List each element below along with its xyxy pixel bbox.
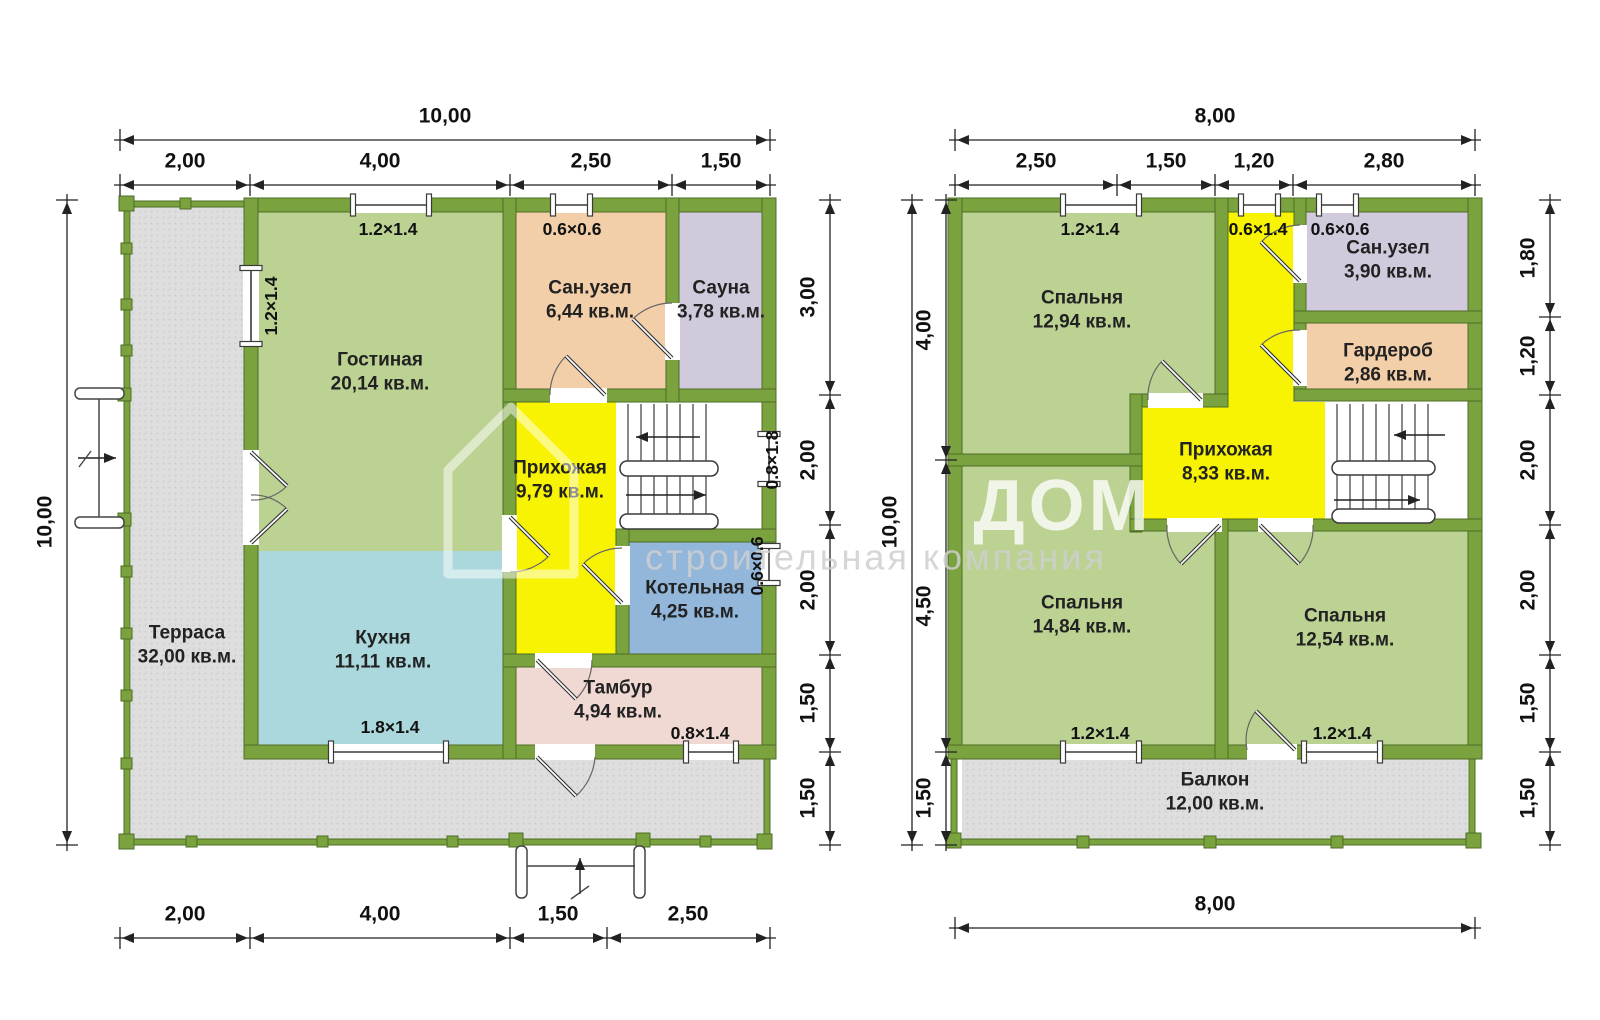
room-area-label: 12,54 кв.м.: [1296, 630, 1395, 651]
window-cap: [1302, 741, 1307, 763]
dim-label: 2,00: [1517, 440, 1540, 481]
terrace-rail: [1469, 759, 1475, 839]
rail-post: [509, 833, 523, 847]
window-cap: [240, 342, 262, 347]
stair-rail: [1332, 509, 1435, 523]
dim-label: 1,50: [797, 683, 820, 724]
room-name-label: Спальня: [1041, 288, 1123, 309]
room-fill-terrasa-left: [131, 206, 244, 840]
window-cap: [1239, 194, 1244, 216]
door-opening: [243, 450, 259, 545]
stair-rail: [620, 461, 718, 476]
window-size-label: 0.6×0.6: [1311, 219, 1370, 239]
room-name-label: Балкон: [1181, 770, 1250, 791]
room-area-label: 12,00 кв.м.: [1166, 794, 1265, 815]
wall: [666, 198, 679, 402]
room-name-label: Тамбур: [584, 678, 653, 699]
wall: [948, 454, 1142, 466]
room-area-label: 32,00 кв.м.: [138, 647, 237, 668]
window-cap: [1317, 194, 1322, 216]
dim-label: 2,00: [1517, 570, 1540, 611]
wall: [1468, 198, 1482, 759]
room-area-label: 12,94 кв.м.: [1033, 312, 1132, 333]
dim-label: 2,50: [668, 903, 709, 926]
room-name-label: Котельная: [645, 578, 744, 599]
porch-rail: [516, 846, 527, 898]
room-name-label: Терраса: [149, 623, 226, 644]
dim-label: 1,50: [1146, 150, 1187, 173]
rail-post: [121, 758, 132, 769]
rail-post: [1466, 833, 1481, 848]
stair-rail: [620, 514, 718, 529]
rail-post: [447, 836, 458, 847]
rail-post: [121, 243, 132, 254]
dim-label: 1,20: [1517, 336, 1540, 377]
wall: [1215, 198, 1228, 407]
window-cap: [427, 194, 432, 216]
window-size-label: 1.8×1.4: [361, 717, 420, 737]
window-size-label: 0.6×0.6: [543, 219, 602, 239]
room-name-label: Кухня: [355, 628, 411, 649]
rail-post: [1204, 836, 1216, 848]
room-name-label: Сан.узел: [1346, 238, 1429, 259]
rail-post: [121, 299, 132, 310]
window-cap: [1137, 741, 1142, 763]
window-size-label: 1.2×1.4: [261, 276, 281, 335]
room-area-label: 6,44 кв.м.: [546, 302, 634, 323]
rail-post: [119, 196, 134, 211]
stair-rail: [1332, 461, 1435, 475]
watermark-subtext: строительная компания: [645, 537, 1107, 578]
rail-post: [700, 836, 711, 847]
window-cap: [1378, 741, 1383, 763]
wall: [1294, 389, 1482, 401]
window-cap: [588, 194, 593, 216]
room-fill-spalnya1b: [1130, 212, 1215, 394]
wall: [503, 198, 516, 759]
terrace-rail: [951, 759, 957, 839]
room-area-label: 3,78 кв.м.: [677, 302, 765, 323]
window-cap: [351, 194, 356, 216]
room-area-label: 9,79 кв.м.: [516, 482, 604, 503]
porch-rail: [634, 846, 645, 898]
window-cap: [444, 741, 449, 763]
window-cap: [1061, 741, 1066, 763]
porch-rail: [75, 517, 124, 528]
rail-post: [757, 834, 772, 849]
room-area-label: 11,11 кв.м.: [335, 652, 432, 673]
dim-label: 10,00: [34, 496, 57, 549]
dim-label: 4,00: [360, 150, 401, 173]
wall: [503, 389, 776, 402]
rail-post: [186, 836, 197, 847]
dim-label: 1,50: [538, 903, 579, 926]
window-cap: [1276, 194, 1281, 216]
window-cap: [684, 741, 689, 763]
room-fill-spalnya1a: [962, 212, 1130, 454]
dim-label: 2,00: [797, 440, 820, 481]
dim-label: 8,00: [1195, 105, 1236, 128]
terrace-rail: [764, 759, 770, 839]
window-size-label: 0.6×1.4: [1229, 219, 1288, 239]
wall: [948, 198, 962, 759]
room-fill-sauna: [679, 212, 762, 389]
room-area-label: 2,86 кв.м.: [1344, 365, 1432, 386]
dim-label: 2,50: [1016, 150, 1057, 173]
window-cap: [329, 741, 334, 763]
rail-post: [121, 690, 132, 701]
dim-label: 1,50: [1517, 683, 1540, 724]
dim-label: 8,00: [1195, 893, 1236, 916]
room-name-label: Сауна: [692, 278, 750, 299]
window-cap: [1354, 194, 1359, 216]
room-area-label: 20,14 кв.м.: [331, 374, 430, 395]
wall: [1294, 311, 1482, 323]
floorplan-stage: План 1-ого этажа План 2-ого этажа 10,002…: [0, 0, 1600, 1020]
dim-label: 10,00: [419, 105, 472, 128]
window-size-label: 0.8×1.8: [762, 430, 782, 489]
room-fill-spalnya2b: [1130, 531, 1215, 745]
room-fill-terrasa-bottom: [244, 759, 764, 839]
rail-post: [121, 566, 132, 577]
room-name-label: Гардероб: [1343, 341, 1433, 362]
dim-label: 1,50: [1517, 778, 1540, 819]
room-area-label: 14,84 кв.м.: [1033, 617, 1132, 638]
room-area-label: 8,33 кв.м.: [1182, 464, 1270, 485]
dim-label: 1,20: [1234, 150, 1275, 173]
room-fill-prihozhaya-2: [1142, 402, 1325, 519]
room-area-label: 3,90 кв.м.: [1344, 262, 1432, 283]
room-name-label: Спальня: [1041, 593, 1123, 614]
window-cap: [1137, 194, 1142, 216]
room-name-label: Спальня: [1304, 606, 1386, 627]
room-name-label: Гостиная: [337, 350, 423, 371]
dim-label: 1,80: [1517, 238, 1540, 279]
room-area-label: 4,94 кв.м.: [574, 702, 662, 723]
dim-label: 4,50: [913, 586, 936, 627]
window-size-label: 1.2×1.4: [1313, 723, 1372, 743]
room-fill-prihozhaya-1: [516, 402, 616, 654]
rail-post: [119, 834, 134, 849]
room-name-label: Сан.узел: [548, 278, 631, 299]
rail-post: [121, 345, 132, 356]
rail-post: [180, 198, 191, 209]
dim-label: 2,80: [1364, 150, 1405, 173]
window-cap: [1061, 194, 1066, 216]
rail-post: [121, 628, 132, 639]
rail-post: [1331, 836, 1343, 848]
window-size-label: 1.2×1.4: [359, 219, 418, 239]
watermark-text: ДОМ: [973, 466, 1152, 546]
window-cap: [734, 741, 739, 763]
window-size-label: 1.2×1.4: [1061, 219, 1120, 239]
wall: [1215, 519, 1228, 759]
dim-label: 1,50: [701, 150, 742, 173]
dim-label: 1,50: [797, 778, 820, 819]
window-cap: [240, 266, 262, 271]
window-cap: [551, 194, 556, 216]
dim-label: 3,00: [797, 277, 820, 318]
rail-post: [317, 836, 328, 847]
dim-label: 2,00: [165, 903, 206, 926]
dim-label: 4,00: [913, 310, 936, 351]
dim-label: 1,50: [913, 778, 936, 819]
room-area-label: 4,25 кв.м.: [651, 602, 739, 623]
rail-post: [636, 833, 650, 847]
window-size-label: 1.2×1.4: [1071, 723, 1130, 743]
dim-label: 2,00: [165, 150, 206, 173]
room-fill-hall-strip: [1228, 212, 1294, 402]
porch-rail: [75, 388, 124, 399]
room-name-label: Прихожая: [1179, 440, 1273, 461]
dim-label: 2,50: [571, 150, 612, 173]
door-opening: [535, 744, 595, 760]
floorplan-drawing: 10,002,004,002,501,502,004,001,502,5010,…: [0, 0, 1600, 1020]
window-size-label: 0.8×1.4: [671, 723, 730, 743]
dim-label: 4,00: [360, 903, 401, 926]
rail-post: [1077, 836, 1089, 848]
